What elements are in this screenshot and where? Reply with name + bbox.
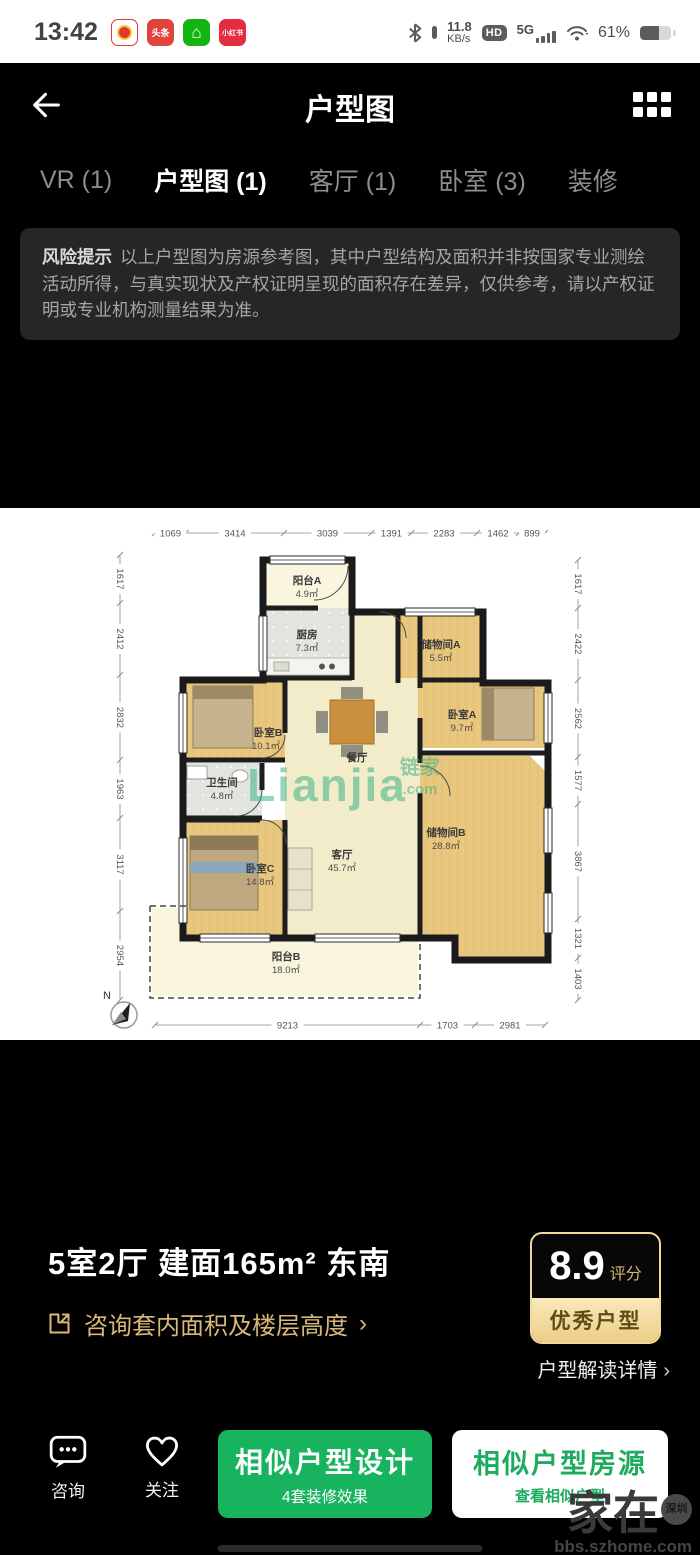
status-bar: 13:42 头条 ⌂ 小红书 11.8 KB/s HD 5G	[0, 0, 700, 63]
rating-score-label: 评分	[610, 1260, 642, 1284]
svg-text:1321: 1321	[572, 928, 583, 949]
chevron-right-icon: ›	[663, 1360, 670, 1382]
floorplan-image[interactable]: 1069 3414 3039 1391 2283 1462 899 1617 2…	[0, 508, 700, 1040]
svg-text:3867: 3867	[572, 851, 583, 872]
svg-text:9.7㎡: 9.7㎡	[451, 723, 474, 734]
tab-vr[interactable]: VR (1)	[40, 166, 112, 195]
tab-floorplan[interactable]: 户型图 (1)	[154, 162, 267, 198]
battery-percent: 61%	[598, 24, 630, 42]
svg-text:2832: 2832	[114, 707, 125, 728]
svg-text:899: 899	[524, 529, 540, 540]
svg-text:N: N	[103, 990, 111, 1002]
follow-label: 关注	[145, 1476, 179, 1501]
svg-text:卧室A: 卧室A	[448, 708, 477, 721]
follow-button[interactable]: 关注	[132, 1434, 192, 1501]
svg-text:卧室B: 卧室B	[254, 726, 283, 739]
hd-badge-icon: HD	[482, 25, 507, 41]
svg-text:2562: 2562	[572, 708, 583, 729]
svg-text:2981: 2981	[499, 1021, 520, 1032]
similar-design-button[interactable]: 相似户型设计 4套装修效果	[218, 1430, 432, 1518]
rating-card: 8.9 评分 优秀户型	[530, 1232, 661, 1344]
battery-icon	[640, 26, 671, 40]
media-tabs: VR (1) 户型图 (1) 客厅 (1) 卧室 (3) 装修	[0, 150, 700, 210]
pinduoduo-icon	[111, 19, 138, 46]
site-watermark-url: bbs.szhome.com	[554, 1538, 692, 1555]
site-watermark: 家在 深圳 bbs.szhome.com	[554, 1490, 692, 1555]
site-watermark-name: 家在	[567, 1490, 659, 1536]
svg-text:2422: 2422	[572, 633, 583, 654]
svg-text:3414: 3414	[224, 529, 245, 540]
dims-right: 1617 2422 2562 1577 3867 1321 1403	[572, 569, 584, 994]
rating-badge: 优秀户型	[532, 1298, 659, 1342]
svg-text:1069: 1069	[160, 529, 181, 540]
svg-text:2283: 2283	[433, 529, 454, 540]
svg-text:45.7㎡: 45.7㎡	[328, 863, 356, 874]
header: 户型图	[0, 63, 700, 147]
svg-text:14.8㎡: 14.8㎡	[246, 877, 274, 888]
bluetooth-device-icon	[432, 26, 437, 39]
site-watermark-city: 深圳	[661, 1494, 692, 1525]
rating-detail-link[interactable]: 户型解读详情›	[537, 1354, 670, 1383]
risk-notice-title: 风险提示	[42, 247, 112, 267]
grid-view-button[interactable]	[632, 91, 672, 119]
heart-icon	[143, 1434, 181, 1469]
page-title: 户型图	[0, 85, 700, 129]
svg-text:阳台B: 阳台B	[272, 950, 301, 963]
home-indicator[interactable]	[218, 1545, 483, 1552]
clock: 13:42	[34, 18, 98, 47]
rating-score: 8.9	[549, 1244, 605, 1289]
risk-notice-body: 以上户型图为房源参考图，其中户型结构及面积并非按国家专业测绘活动所得，与真实现状…	[42, 247, 655, 320]
wifi-icon	[566, 24, 588, 41]
xiaohongshu-icon: 小红书	[219, 19, 246, 46]
svg-text:1617: 1617	[114, 568, 125, 589]
svg-text:18.0㎡: 18.0㎡	[272, 965, 300, 976]
svg-text:Lianjia: Lianjia	[247, 759, 407, 811]
consult-button[interactable]: 咨询	[38, 1434, 98, 1502]
consult-label: 咨询	[51, 1477, 85, 1502]
svg-text:1403: 1403	[572, 968, 583, 989]
svg-text:.com: .com	[402, 781, 437, 798]
svg-text:3039: 3039	[317, 529, 338, 540]
chat-bubble-icon	[48, 1434, 88, 1470]
svg-text:链家: 链家	[400, 755, 441, 779]
consult-area-link[interactable]: 咨询套内面积及楼层高度 ›	[46, 1306, 367, 1341]
svg-text:2412: 2412	[114, 628, 125, 649]
floorplan-consult-icon	[46, 1310, 73, 1337]
listing-summary: 5室2厅 建面165m² 东南	[48, 1238, 390, 1283]
similar-design-title: 相似户型设计	[235, 1441, 415, 1481]
risk-notice: 风险提示以上户型图为房源参考图，其中户型结构及面积并非按国家专业测绘活动所得，与…	[20, 228, 680, 340]
svg-text:1963: 1963	[114, 778, 125, 799]
svg-text:10.1㎡: 10.1㎡	[252, 741, 280, 752]
svg-text:阳台A: 阳台A	[293, 574, 322, 587]
similar-design-subtitle: 4套装修效果	[282, 1485, 368, 1507]
svg-text:1391: 1391	[381, 529, 402, 540]
svg-text:1617: 1617	[572, 573, 583, 594]
screen: 13:42 头条 ⌂ 小红书 11.8 KB/s HD 5G	[0, 0, 700, 1555]
tab-bedroom[interactable]: 卧室 (3)	[438, 162, 526, 198]
home-app-icon: ⌂	[183, 19, 210, 46]
svg-text:28.8㎡: 28.8㎡	[432, 841, 460, 852]
svg-text:1462: 1462	[487, 529, 508, 540]
svg-text:1577: 1577	[572, 770, 583, 791]
svg-text:4.8㎡: 4.8㎡	[211, 791, 234, 802]
network-speed: 11.8 KB/s	[447, 20, 472, 44]
similar-listings-title: 相似户型房源	[473, 1442, 647, 1481]
svg-text:2954: 2954	[114, 945, 125, 966]
signal-5g-icon: 5G	[517, 22, 556, 43]
svg-text:7.3㎡: 7.3㎡	[296, 643, 319, 654]
svg-text:1703: 1703	[437, 1021, 458, 1032]
toutiao-icon: 头条	[147, 19, 174, 46]
svg-text:厨房: 厨房	[297, 628, 318, 641]
svg-text:3117: 3117	[114, 854, 125, 874]
svg-text:9213: 9213	[277, 1021, 298, 1032]
chevron-right-icon: ›	[359, 1310, 367, 1338]
svg-text:卫生间: 卫生间	[206, 776, 238, 789]
svg-text:5.5㎡: 5.5㎡	[430, 653, 453, 664]
tab-decoration[interactable]: 装修	[568, 162, 618, 198]
tab-livingroom[interactable]: 客厅 (1)	[309, 162, 397, 198]
svg-text:储物间A: 储物间A	[421, 638, 460, 651]
bluetooth-icon	[408, 23, 422, 43]
svg-text:客厅: 客厅	[331, 848, 353, 861]
svg-text:卧室C: 卧室C	[246, 862, 275, 875]
consult-area-label: 咨询套内面积及楼层高度	[84, 1306, 348, 1341]
svg-text:4.9㎡: 4.9㎡	[296, 589, 319, 600]
svg-text:储物间B: 储物间B	[426, 826, 465, 839]
